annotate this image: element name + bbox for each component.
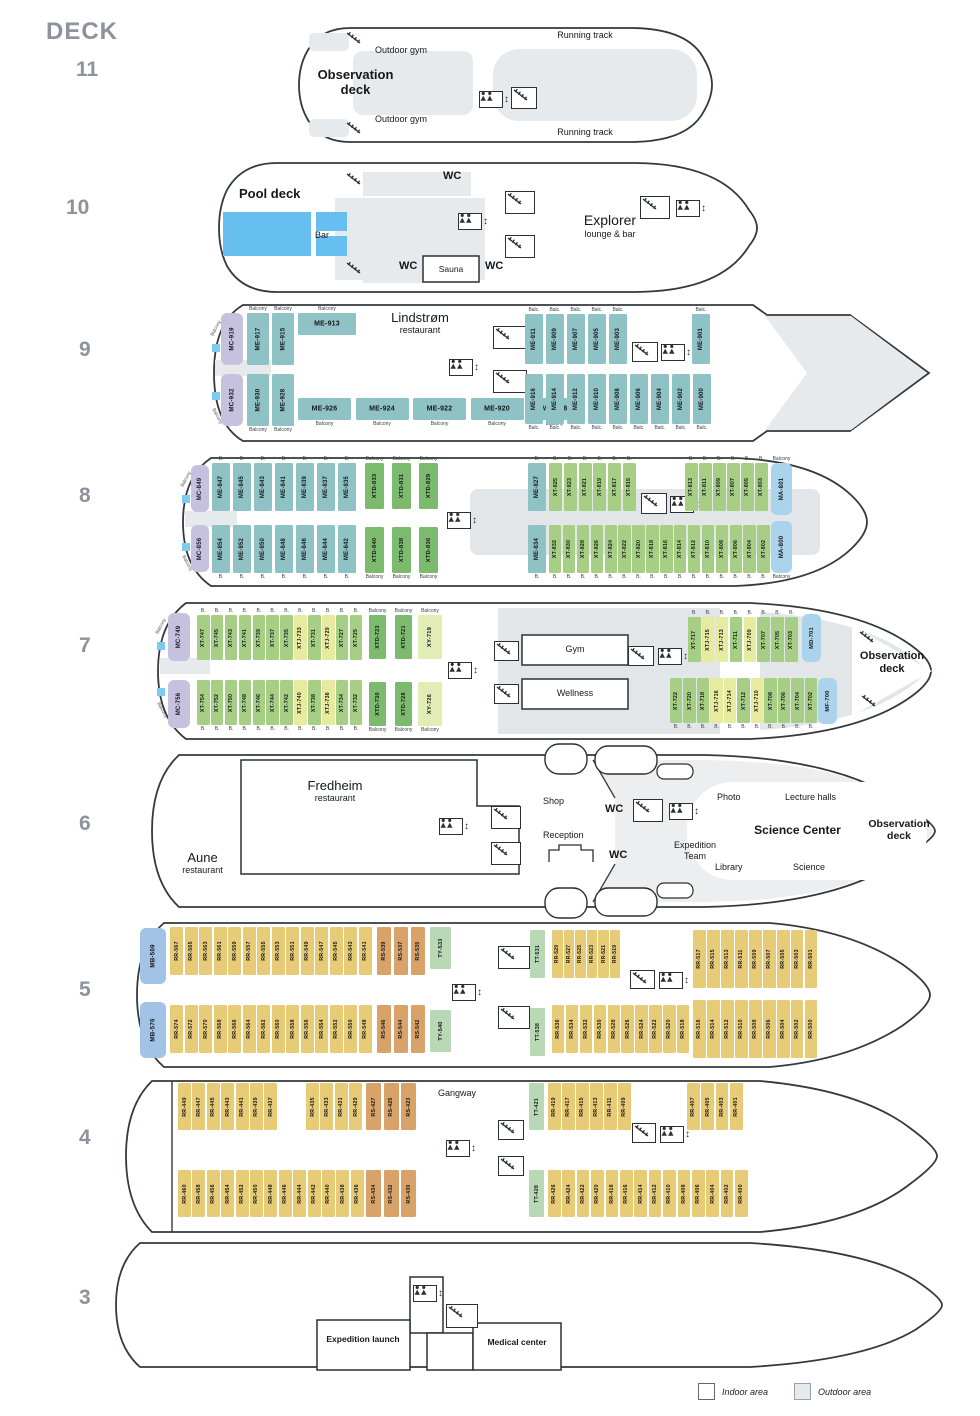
cabin-RR-552: RR-552 [330, 1005, 343, 1053]
cabin-XT-703: B.XT-703 [785, 609, 798, 662]
cabin-RR-415: RR-415 [576, 1083, 589, 1130]
cabin-RR-556: RR-556 [301, 1005, 314, 1053]
cabin-RR-436: RR-436 [351, 1170, 364, 1217]
cabin-XT-832: XT-832B. [549, 525, 561, 581]
cabin-RR-527: RR-527 [564, 930, 575, 978]
deck4-row-bl: RR-460RR-458RR-456RR-454RR-452RR-450RR-4… [178, 1170, 364, 1217]
balcony-label: B. [608, 573, 613, 581]
cabin-RR-518: RR-518 [677, 1005, 689, 1053]
balcony-label: B. [229, 607, 234, 615]
balcony-label: B. [354, 725, 359, 733]
cabin-XT-808: XT-808B. [716, 525, 728, 581]
cabin-RR-444: RR-444 [293, 1170, 306, 1217]
deck9-row-me901: Balc.ME-901 [692, 306, 710, 364]
cabin-RS-535: RS-535 [411, 927, 425, 975]
cabin-XT-711: B.XT-711 [730, 609, 743, 662]
deck4-row-rs-bottom: RS-434RS-432RS-430 [366, 1170, 416, 1217]
cabin-RR-521: RR-521 [598, 930, 609, 978]
deck5-row-rr-tr2: RR-517RR-515RR-513RR-511RR-509RR-507RR-5… [693, 930, 817, 988]
balcony-label: Balcony [421, 607, 439, 615]
cabin-RR-534: RR-534 [566, 1005, 578, 1053]
balcony-label: B. [240, 573, 245, 581]
balcony-label: B. [701, 723, 706, 731]
cabin-RR-435: RR-435 [306, 1083, 319, 1130]
cabin-RS-423: RS-423 [401, 1083, 416, 1130]
elevator-icon: ↕ [458, 213, 488, 230]
deck7-row-mf700: MF-700 [818, 678, 837, 724]
cabin-RR-448: RR-448 [264, 1170, 277, 1217]
cabin-RR-506: RR-506 [763, 1000, 776, 1058]
stairs-icon [630, 970, 655, 989]
cabin-XT-752: XT-752B. [211, 680, 224, 733]
balcony-label: Balc. [654, 424, 665, 432]
cabin-XT-822: XT-822B. [618, 525, 630, 581]
balcony-label: B. [595, 573, 600, 581]
balcony-label: B. [775, 609, 780, 617]
gangway-label: Gangway [438, 1088, 476, 1099]
elevator-icon: ↕ [479, 91, 509, 108]
deck-number-5: 5 [79, 978, 91, 1002]
science-center-label: Science Center [730, 823, 865, 837]
deck-5: MB-569 RR-567RR-565RR-563RR-561RR-559RR-… [130, 920, 935, 1070]
cabin-RS-546: RS-546 [377, 1005, 391, 1053]
cabin-RS-544: RS-544 [394, 1005, 408, 1053]
deck-column-title: DECK [46, 18, 118, 46]
balcony-label: Balcony [366, 455, 384, 463]
cabin-XT-812: XT-812B. [688, 525, 700, 581]
deck-number-10: 10 [66, 196, 89, 220]
reception-label: Reception [543, 830, 584, 841]
cabin-XTJ-714: XTJ-714B. [724, 678, 736, 731]
cabin-RS-430: RS-430 [401, 1170, 416, 1217]
cabin-XT-732: XT-732B. [350, 680, 363, 733]
balcony-label: B. [340, 725, 345, 733]
cabin-RR-410: RR-410 [663, 1170, 676, 1217]
stairs-icon [860, 694, 880, 710]
stairs-icon [345, 121, 365, 137]
cabin-MC-919: MC-919 [221, 313, 243, 365]
balcony-label: B. [243, 725, 248, 733]
balcony-label: Balcony [393, 573, 411, 581]
cabin-XT-744: XT-744B. [266, 680, 279, 733]
cabin-ME-914: ME-914Balc. [546, 374, 564, 432]
balcony-label: B. [243, 607, 248, 615]
lindstrom-restaurant-label: Lindstrøm restaurant [345, 310, 495, 336]
cabin-RR-549: RR-549 [301, 927, 314, 975]
cabin-XT-707: B.XT-707 [757, 609, 770, 662]
balcony-label: Balc. [528, 424, 539, 432]
cabin-MC-756: MC-756 [168, 680, 190, 728]
balcony-label: B. [687, 723, 692, 731]
cabin-MA-801: BalconyMA-801 [771, 455, 792, 515]
balcony-label: B. [714, 723, 719, 731]
stairs-icon [498, 1006, 530, 1029]
cabin-ME-843: B.ME-843 [254, 455, 272, 511]
balcony-label: B. [622, 573, 627, 581]
stairs-icon [505, 191, 535, 214]
balcony-label: B. [689, 455, 694, 463]
balcony-label: B. [692, 573, 697, 581]
outdoor-gym-label-bottom: Outdoor gym [375, 114, 427, 125]
fredheim-restaurant-label: Fredheim restaurant [275, 778, 395, 804]
cabin-RR-505: RR-505 [777, 930, 790, 988]
running-track-label-bottom: Running track [520, 127, 650, 138]
shop-label: Shop [543, 796, 564, 807]
deck4-row-rs-top: RS-427RS-425RS-423 [366, 1083, 416, 1130]
cabin-ME-906: ME-906Balc. [630, 374, 648, 432]
cabin-ME-920: ME-920Balcony [471, 398, 524, 428]
cabin-RR-528: RR-528 [608, 1005, 620, 1053]
expedition-launch-label: Expedition launch [323, 1334, 403, 1344]
balcony-label: B. [567, 573, 572, 581]
cabin-XT-718: XT-718B. [697, 678, 709, 731]
cabin-TT-538: TT-538 [530, 1008, 545, 1056]
balcony-label: B. [706, 609, 711, 617]
cabin-RR-411: RR-411 [604, 1083, 617, 1130]
expedition-team-label: Expedition Team [663, 840, 727, 861]
deck4-row-tt428: TT-428 [529, 1170, 544, 1217]
cabin-RR-447: RR-447 [192, 1083, 205, 1130]
cabin-XT-731: B.XT-731 [308, 607, 321, 660]
cabin-RS-425: RS-425 [384, 1083, 399, 1130]
cabin-ME-928: ME-928Balcony [272, 374, 294, 434]
deck5-row-tt531: TT-531 [530, 930, 545, 978]
cabin-ME-910: ME-910Balc. [588, 374, 606, 432]
deck7-row-xt-bottom: XT-754B.XT-752B.XT-750B.XT-748B.XT-746B.… [197, 680, 362, 733]
balcony-label: Balcony [318, 305, 336, 313]
deck5-row-rr-bottom: RR-574RR-572RR-570RR-568RR-566RR-564RR-5… [170, 1005, 372, 1053]
cabin-RR-574: RR-574 [170, 1005, 183, 1053]
deck8-row-me-bottom: ME-854B.ME-852B.ME-850B.ME-848B.ME-846B.… [212, 525, 356, 581]
deck8-row-mc-bottom: MC-856 [191, 525, 209, 572]
balcony-label: Balcony [420, 573, 438, 581]
deck5-row-mb569: MB-569 [140, 928, 166, 984]
deck8-row-ma801: BalconyMA-801 [771, 455, 792, 515]
wc-label-bottom-right: WC [485, 260, 503, 273]
elevator-icon: ↕ [669, 803, 699, 820]
cabin-XTJ-710: XTJ-710B. [751, 678, 763, 731]
cabin-RR-536: RR-536 [552, 1005, 564, 1053]
stairs-icon [498, 946, 530, 969]
balcony-label: Balcony [395, 607, 413, 615]
lecture-halls-label: Lecture halls [785, 792, 836, 803]
balcony-label: Balc. [695, 306, 706, 314]
deck-7: Balcony Balcony MC-749 B.XT-747B.XT-745B… [150, 600, 935, 742]
cabin-XT-817: B.XT-817 [608, 455, 621, 511]
cabin-RR-520: RR-520 [663, 1005, 675, 1053]
balcony-label: Balcony [488, 420, 506, 428]
cabin-XT-818: XT-818B. [646, 525, 658, 581]
stairs-icon [345, 172, 365, 188]
cabin-ME-901: Balc.ME-901 [692, 306, 710, 364]
balcony-label: Balc. [675, 424, 686, 432]
balcony-label: B. [354, 607, 359, 615]
library-label: Library [715, 862, 743, 873]
balcony-label: B. [795, 723, 800, 731]
cabin-RR-502: RR-502 [791, 1000, 804, 1058]
cabin-TY-540: TY-540 [430, 1010, 451, 1052]
cabin-RR-439: RR-439 [250, 1083, 263, 1130]
balcony-label: B. [312, 725, 317, 733]
cabin-XT-804: XT-804B. [743, 525, 755, 581]
deck-number-8: 8 [79, 484, 91, 508]
balcony-label: Balcony [369, 726, 387, 734]
deck7-row-md701: MD-701 [802, 614, 821, 662]
balcony-label: B. [581, 573, 586, 581]
cabin-RR-522: RR-522 [649, 1005, 661, 1053]
cabin-RR-460: RR-460 [178, 1170, 191, 1217]
balcony-label: B. [650, 573, 655, 581]
stairs-icon [493, 370, 527, 393]
deck4-row-tr1: RR-419RR-417RR-415RR-413RR-411RR-409 [548, 1083, 631, 1130]
cabin-ME-912: ME-912Balc. [567, 374, 585, 432]
deck8-row-xt-top2: B.XT-813B.XT-811B.XT-809B.XT-807B.XT-805… [685, 455, 768, 511]
cabin-XT-739: B.XT-739 [253, 607, 266, 660]
cabin-XTD-838: XTD-838Balcony [392, 527, 411, 581]
cabin-XTD-840: XTD-840Balcony [365, 527, 384, 581]
balcony-label: B. [728, 723, 733, 731]
cabin-RR-561: RR-561 [214, 927, 227, 975]
cabin-XTJ-715: B.XTJ-715 [702, 609, 715, 662]
cabin-XT-725: B.XT-725 [350, 607, 363, 660]
cabin-XT-803: B.XT-803 [755, 455, 768, 511]
balcony-label: B. [717, 455, 722, 463]
cabin-RR-407: RR-407 [687, 1083, 700, 1130]
cabin-MB-569: MB-569 [140, 928, 166, 984]
cabin-XT-805: B.XT-805 [741, 455, 754, 511]
stairs-icon [345, 31, 365, 47]
cabin-XT-712: XT-712B. [737, 678, 749, 731]
observation-deck-label: Observation deck [303, 67, 408, 98]
cabin-RR-431: RR-431 [335, 1083, 348, 1130]
cabin-RR-529: RR-529 [552, 930, 563, 978]
cabin-RR-429: RR-429 [349, 1083, 362, 1130]
balcony-label: Balcony [395, 726, 413, 734]
deck-number-4: 4 [79, 1126, 91, 1150]
wellness-label: Wellness [522, 688, 628, 699]
balcony-label: B. [636, 573, 641, 581]
cabin-RR-541: RR-541 [359, 927, 372, 975]
deck-6: Fredheim restaurant Aune restaurant ↕ Sh… [145, 752, 940, 910]
cabin-RS-542: RS-542 [411, 1005, 425, 1053]
cabin-XT-743: B.XT-743 [225, 607, 238, 660]
cabin-RR-426: RR-426 [548, 1170, 561, 1217]
deck8-row-xt-top1: B.XT-825B.XT-823B.XT-821B.XT-819B.XT-817… [549, 455, 636, 511]
deck4-row-tl1: RR-449RR-447RR-445RR-443RR-441RR-439RR-4… [178, 1083, 277, 1130]
cabin-XTD-829: BalconyXTD-829 [419, 455, 438, 509]
cabin-RR-564: RR-564 [243, 1005, 256, 1053]
deck-number-6: 6 [79, 812, 91, 836]
elevator-icon: ↕ [660, 1126, 690, 1143]
balcony-label: B. [692, 609, 697, 617]
balcony-label: B. [768, 723, 773, 731]
cabin-RR-572: RR-572 [185, 1005, 198, 1053]
cabin-XT-825: B.XT-825 [549, 455, 562, 511]
cabin-RR-418: RR-418 [606, 1170, 619, 1217]
deck-9: Balcony Balcony MC-919 BalconyME-917Balc… [205, 302, 935, 445]
cabin-ME-839: B.ME-839 [296, 455, 314, 511]
balcony-label: B. [298, 725, 303, 733]
cabin-XY-719: BalconyXY-719 [418, 607, 442, 659]
stairs-icon [628, 646, 654, 666]
balcony-label: B. [568, 455, 573, 463]
balcony-label: B. [734, 609, 739, 617]
cabin-ME-916: ME-916Balc. [525, 374, 543, 432]
balcony-label: Balcony [316, 420, 334, 428]
balcony-label: B. [229, 725, 234, 733]
outdoor-gym-label-top: Outdoor gym [375, 45, 427, 56]
deck7-row-xy726: XY-726Balcony [418, 682, 442, 734]
balcony-label: B. [340, 607, 345, 615]
cabin-RR-550: RR-550 [344, 1005, 357, 1053]
balcony-label: Balc. [528, 306, 539, 314]
cabin-XT-705: B.XT-705 [771, 609, 784, 662]
balcony-label: B. [553, 455, 558, 463]
deck8-row-me834: ME-834B. [528, 525, 546, 581]
cabin-RR-548: RR-548 [359, 1005, 372, 1053]
balcony-label: Balc. [612, 306, 623, 314]
cabin-XTJ-729: B.XTJ-729 [322, 607, 335, 660]
cabin-ME-911: Balc.ME-911 [525, 306, 543, 364]
cabin-RR-401: RR-401 [730, 1083, 743, 1130]
deck5-row-ty533: TY-533 [430, 927, 451, 969]
balcony-label: Balc. [549, 424, 560, 432]
cabin-RR-420: RR-420 [591, 1170, 604, 1217]
cabin-ME-837: B.ME-837 [317, 455, 335, 511]
deck5-row-ty540: TY-540 [430, 1010, 451, 1052]
elevator-icon: ↕ [449, 359, 479, 376]
cabin-RR-512: RR-512 [721, 1000, 734, 1058]
cabin-RR-417: RR-417 [562, 1083, 575, 1130]
cabin-RR-566: RR-566 [228, 1005, 241, 1053]
cabin-XT-742: XT-742B. [280, 680, 293, 733]
stairs-icon [632, 1123, 656, 1143]
elevator-icon: ↕ [439, 818, 469, 835]
balcony-label: B. [553, 573, 558, 581]
cabin-ME-845: B.ME-845 [233, 455, 251, 511]
cabin-XT-748: XT-748B. [239, 680, 252, 733]
cabin-ME-930: ME-930Balcony [247, 374, 269, 434]
deck5-row-mb576: MB-576 [140, 1002, 166, 1058]
cabin-RR-547: RR-547 [315, 927, 328, 975]
deck9-row-me-top-right: Balc.ME-911Balc.ME-909Balc.ME-907Balc.ME… [525, 306, 627, 364]
cabin-XT-821: B.XT-821 [579, 455, 592, 511]
cabin-XTJ-736: XTJ-736B. [322, 680, 335, 733]
elevator-icon: ↕ [452, 984, 482, 1001]
deck4-row-tl2: RR-435RR-433RR-431RR-429 [306, 1083, 362, 1130]
cabin-XT-828: XT-828B. [577, 525, 589, 581]
elevator-icon: ↕ [447, 512, 477, 529]
cabin-XT-702: XT-702B. [805, 678, 817, 731]
cabin-XT-823: B.XT-823 [564, 455, 577, 511]
cabin-RR-551: RR-551 [286, 927, 299, 975]
balcony-label: B. [282, 573, 287, 581]
balcony-label: B. [303, 455, 308, 463]
cabin-RR-400: RR-400 [735, 1170, 748, 1217]
balcony-label: Balcony [249, 305, 267, 313]
cabin-RR-443: RR-443 [221, 1083, 234, 1130]
medical-center-label: Medical center [477, 1337, 557, 1347]
cabin-RR-524: RR-524 [635, 1005, 647, 1053]
cabin-RR-545: RR-545 [330, 927, 343, 975]
balcony-label: Balcony [421, 726, 439, 734]
balcony-label: B. [674, 723, 679, 731]
cabin-ME-908: ME-908Balc. [609, 374, 627, 432]
cabin-XT-814: XT-814B. [674, 525, 686, 581]
cabin-XT-807: B.XT-807 [727, 455, 740, 511]
cabin-RR-442: RR-442 [308, 1170, 321, 1217]
cabin-XY-726: XY-726Balcony [418, 682, 442, 734]
cabin-TT-421: TT-421 [529, 1083, 544, 1130]
balcony-label: Balcony [373, 420, 391, 428]
balcony-label: B. [731, 455, 736, 463]
cabin-RR-405: RR-405 [701, 1083, 714, 1130]
cabin-XT-816: XT-816B. [660, 525, 672, 581]
cabin-RR-504: RR-504 [777, 1000, 790, 1058]
cabin-MA-800: MA-800Balcony [771, 521, 792, 581]
cabin-ME-905: Balc.ME-905 [588, 306, 606, 364]
cabin-XT-815: B.XT-815 [623, 455, 636, 511]
cabin-RR-446: RR-446 [279, 1170, 292, 1217]
cabin-RR-568: RR-568 [214, 1005, 227, 1053]
cabin-ME-909: Balc.ME-909 [546, 306, 564, 364]
balcony-label: B. [219, 573, 224, 581]
cabin-RR-501: RR-501 [805, 930, 818, 988]
cabin-ME-900: ME-900Balc. [693, 374, 711, 432]
outdoor-area-label: Outdoor area [818, 1387, 871, 1397]
cabin-RR-532: RR-532 [580, 1005, 592, 1053]
deck8-row-xtd-top: BalconyXTD-833BalconyXTD-831BalconyXTD-8… [365, 455, 438, 509]
cabin-RR-526: RR-526 [621, 1005, 633, 1053]
elevator-icon: ↕ [661, 344, 691, 361]
stairs-icon [498, 1156, 524, 1176]
photo-label: Photo [717, 792, 741, 803]
cabin-MB-576: MB-576 [140, 1002, 166, 1058]
balcony-label: B. [755, 723, 760, 731]
cabin-ME-834: ME-834B. [528, 525, 546, 581]
balcony-label: B. [201, 607, 206, 615]
cabin-XT-747: B.XT-747 [197, 607, 210, 660]
balcony-label: B. [747, 609, 752, 617]
stairs-icon [491, 806, 521, 829]
balcony-label: Balcony [420, 455, 438, 463]
balcony-label: B. [703, 455, 708, 463]
balcony-label: Balcony [393, 455, 411, 463]
balcony-label: B. [312, 607, 317, 615]
stairs-icon [640, 196, 670, 219]
cabin-ME-902: ME-902Balc. [672, 374, 690, 432]
balcony-label: Balcony [274, 305, 292, 313]
cabin-RR-403: RR-403 [716, 1083, 729, 1130]
balcony-label: Balc. [696, 424, 707, 432]
cabin-RR-433: RR-433 [320, 1083, 333, 1130]
cabin-RS-434: RS-434 [366, 1170, 381, 1217]
balcony-label: Balcony [773, 573, 791, 581]
deck5-row-rr-br1: RR-536RR-534RR-532RR-530RR-528RR-526RR-5… [552, 1005, 689, 1053]
cabin-RR-557: RR-557 [243, 927, 256, 975]
balcony-label: B. [261, 573, 266, 581]
deck5-row-rr-tr1: RR-529RR-527RR-525RR-523RR-521RR-519 [552, 930, 620, 978]
balcony-label: B. [215, 607, 220, 615]
deck7-row-xy719: BalconyXY-719 [418, 607, 442, 659]
balcony-label: B. [745, 455, 750, 463]
cabin-XTJ-713: B.XTJ-713 [716, 609, 729, 662]
cabin-XT-706: XT-706B. [778, 678, 790, 731]
cabin-ME-842: ME-842B. [338, 525, 356, 581]
cabin-ME-922: ME-922Balcony [413, 398, 466, 428]
cabin-RR-441: RR-441 [236, 1083, 249, 1130]
cabin-XT-806: XT-806B. [730, 525, 742, 581]
